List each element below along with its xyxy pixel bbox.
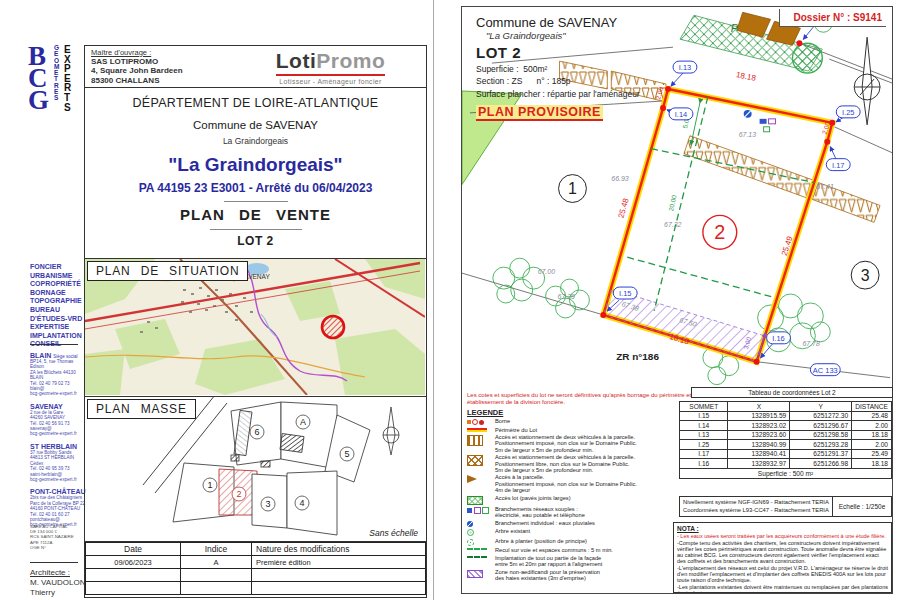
coordinate-system: Coordonnées système L93-CC47 - Rattachem… (683, 507, 829, 515)
nota-item: -L'emplacement des réseaux est celui du … (677, 565, 888, 583)
legend-item: Accès lot (pavés joints larges) (467, 495, 693, 505)
lot-number-title: LOT 2 (85, 234, 426, 248)
lotipromo-tagline: Lotisseur - Aménageur foncier (241, 78, 420, 85)
dossier-number: Dossier N° : S9141 (779, 9, 887, 27)
depth-dim: 20.00 (667, 194, 678, 212)
plan-sheet: P (461, 6, 893, 594)
mod-table-row: 09/06/2023 A Première édition (86, 556, 426, 569)
setback-line-icon (467, 547, 495, 550)
office-savenay: SAVENAY 2 rue de la Gare 44260 SAVENAY T… (30, 403, 86, 437)
svg-text:66.93: 66.93 (611, 175, 629, 182)
svg-text:18.18: 18.18 (735, 70, 757, 83)
bcg-experts-label: EXPERTS (64, 45, 75, 117)
mod-col-date: Date (86, 543, 181, 556)
svg-text:AC 133: AC 133 (813, 366, 838, 375)
svg-text:67.29: 67.29 (558, 293, 576, 300)
svg-text:I.15: I.15 (619, 289, 631, 298)
utility-boxes-icon (467, 506, 495, 514)
boundary-disclaimer: Les cotes et superficies du lot ne seron… (467, 392, 693, 406)
svg-text:I.17: I.17 (832, 161, 844, 170)
svg-text:2: 2 (714, 221, 725, 243)
existing-tree-icon (467, 528, 495, 536)
owner-block: Maître d'ouvrage : SAS LOTIPROMO 4, Squa… (91, 48, 241, 86)
svg-text:6: 6 (254, 427, 259, 437)
electricity-box-icon (760, 119, 767, 124)
owner-address: SAS LOTIPROMO 4, Square John Bardeen 853… (91, 57, 241, 86)
water-box-icon (769, 119, 776, 124)
masse-section: PLAN MASSE (85, 397, 426, 542)
svg-text:1: 1 (207, 480, 212, 490)
parcel-access-icon (467, 474, 495, 483)
coordinates-table-title: Tableau de coordonnées Lot 2 (691, 387, 893, 398)
project-name: "La Graindorgeais" (85, 154, 426, 176)
paved-access-icon (467, 495, 495, 505)
title-block-frame: Maître d'ouvrage : SAS LOTIPROMO 4, Squa… (84, 45, 427, 598)
sidebar-divider-2 (30, 562, 78, 563)
non-aedificandi-icon (467, 569, 495, 578)
svg-text:67.78: 67.78 (802, 340, 820, 347)
architect-name: M. VAUDOLON Thierry (30, 578, 90, 598)
svg-text:67.13: 67.13 (739, 131, 757, 138)
situation-title: PLAN DE SITUATION (87, 261, 248, 281)
borne-icon (467, 418, 495, 425)
title-section: DÉPARTEMENT DE LOIRE-ATLANTIQUE Commune … (85, 88, 426, 259)
rule (210, 229, 302, 230)
office-blain: BLAIN Siège social BP14, 5, rue Thomas E… (30, 352, 86, 397)
situation-section: PLAN DE SITUATION (85, 259, 426, 397)
modifications-table: Date Indice Nature des modifications 09/… (85, 542, 426, 595)
masse-north-arrow (383, 407, 399, 455)
legend-item: Branchements réseaux souples : électrici… (467, 506, 693, 518)
legend-item: Accès et stationnement de deux véhicules… (467, 434, 693, 453)
svg-text:25.48: 25.48 (617, 197, 631, 219)
svg-text:3: 3 (265, 499, 270, 509)
svg-text:2: 2 (236, 489, 241, 499)
parcel-reference: ZR n°186 (616, 351, 659, 362)
owner-section: Maître d'ouvrage : SAS LOTIPROMO 4, Squa… (85, 46, 426, 88)
legend-item: Recul sur voie et espaces communs : 5 m … (467, 547, 693, 553)
plan-lot-title: LOT 2 (476, 44, 706, 61)
plan-commune: Commune de SAVENAY (476, 15, 706, 30)
legend-item: Accès à la parcelle. Positionnement impo… (467, 474, 693, 493)
owner-label: Maître d'ouvrage : (91, 48, 241, 57)
coord-row: I.13 1328923.60 6251298.58 18.18 (680, 430, 892, 440)
coord-superficie: Superficie : 500 m² (679, 469, 892, 479)
coord-row: I.16 1328932.97 6251266.98 18.18 (680, 459, 892, 469)
lot-perimeter-icon (467, 427, 495, 433)
svg-text:67.00: 67.00 (538, 268, 556, 275)
svg-text:A: A (300, 417, 306, 427)
office-st-herblain: ST HERBLAIN 37 rue Bobby Sands 44813 ST … (30, 443, 86, 482)
coord-row: I.17 1328940.41 6251291.37 25.49 (680, 449, 892, 459)
lotipromo-logo: LotiPromo Lotisseur - Aménageur foncier (241, 49, 420, 85)
scale-note: Sans échelle (369, 528, 418, 538)
bcg-logo: BCG GEOMETRES EXPERTS (28, 45, 86, 117)
bcg-letters: BCG (28, 45, 52, 117)
sidebar-legal-print: SARL AU CAPITAL DE 134 000 € RCS SAINT-N… (30, 524, 86, 550)
legend-item: Accès et stationnement de deux véhicules… (467, 454, 693, 473)
telecom-box-icon (764, 127, 770, 132)
svg-text:I.25: I.25 (842, 108, 854, 117)
coord-row: I.14 1328923.02 6251296.67 2.00 (680, 421, 892, 431)
document-type: PLAN DE VENTE (85, 206, 426, 223)
permit-reference: PA 44195 23 E3001 - Arrêté du 06/04/2023 (85, 181, 426, 195)
legend-item: Arbre à planter (position de principe) (467, 538, 693, 546)
departement-title: DÉPARTEMENT DE LOIRE-ATLANTIQUE (85, 96, 426, 110)
svg-text:67.32: 67.32 (664, 221, 682, 228)
legend-title: LEGENDE (467, 408, 503, 417)
scale-box: Echelle : 1/250e (833, 496, 892, 517)
svg-text:5: 5 (344, 449, 349, 459)
map-site-marker (322, 316, 344, 338)
svg-text:I.16: I.16 (772, 334, 784, 343)
architect-label: Architecte : (30, 568, 90, 578)
facade-line-icon (467, 555, 495, 558)
masse-title: PLAN MASSE (87, 399, 196, 419)
commune-title: Commune de SAVENAY (85, 119, 426, 131)
mod-table-row (86, 569, 426, 582)
access-imposed-icon (467, 434, 495, 446)
mod-col-nature: Nature des modifications (252, 543, 426, 556)
plan-section: Section : ZS n° : 185p (476, 76, 706, 86)
plan-de-vente-document: { "colors":{"accent_blue":"#2a2a9e","red… (0, 0, 900, 600)
lieu-dit: La Graindorgeais (85, 136, 426, 146)
levelling-system: Nivellement système NGF-IGN69 - Rattache… (683, 499, 829, 507)
plan-superficie: Superficie : 500m² (476, 64, 706, 74)
plan-header: Commune de SAVENAY "La Graindorgeais" LO… (476, 15, 706, 121)
parking-label: P (731, 22, 739, 34)
svg-text:67.41: 67.41 (816, 183, 834, 190)
svg-text:3: 3 (861, 267, 870, 284)
legend-item: Zone non-aedificandi pour la préservatio… (467, 569, 693, 581)
bcg-geometres-label: GEOMETRES (54, 45, 62, 117)
architect-block: Architecte : M. VAUDOLON Thierry 53, Ker… (30, 568, 90, 600)
nota-item: -Les plantations existantes doivent être… (677, 584, 888, 593)
mod-table-row (86, 582, 426, 595)
coordinates-table: SOMMET X Y DISTANCE I.15 1328915.59 6251… (679, 401, 892, 479)
stormwater-icon (467, 520, 495, 527)
legend-item: Branchement individuel : eaux pluviales (467, 520, 693, 527)
legend-item: Périmètre du Lot (467, 427, 693, 433)
tree-to-plant-icon (467, 538, 495, 546)
sidebar-offices: BLAIN Siège social BP14, 5, rue Thomas E… (30, 352, 86, 534)
svg-text:4: 4 (299, 498, 304, 508)
nota-item: -Compte tenu des activités des chantiers… (677, 540, 888, 564)
office-pont-chateau: PONT-CHÂTEAU 2bis rue des Châtaigniers P… (30, 488, 86, 527)
legend-item: Implantation de tout ou partie de la faç… (467, 555, 693, 567)
nota-box: NOTA : - Les eaux usées seront traitées … (673, 522, 892, 593)
plan-lieu: "La Graindorgeais" (486, 30, 706, 41)
nota-red-item: - Les eaux usées seront traitées par les… (677, 533, 888, 539)
nota-title: NOTA : (677, 525, 888, 532)
coord-row: I.25 1328940.99 6251293.28 2.00 (680, 440, 892, 450)
sheet-divider (433, 0, 434, 600)
plan-surface: Surface plancher : répartie par l'aménag… (476, 89, 706, 99)
legend-item: Borne (467, 418, 693, 425)
svg-text:1: 1 (568, 180, 577, 197)
sidebar-services-list: FONCIER URBANISME COPROPRIÉTÉ BORNAGE TO… (30, 263, 86, 349)
legend: Borne Périmètre du Lot Accès et stationn… (467, 418, 693, 583)
legend-item: Arbre existant (467, 528, 693, 536)
provisional-stamp: PLAN PROVISOIRE (476, 105, 603, 121)
mod-col-indice: Indice (181, 543, 252, 556)
rule (224, 201, 288, 202)
coord-row: I.15 1328915.59 6251272.30 25.48 (680, 411, 892, 421)
reference-systems-box: Nivellement système NGF-IGN69 - Rattache… (679, 496, 892, 517)
sidebar-divider (30, 344, 78, 345)
access-free-icon (467, 454, 495, 466)
